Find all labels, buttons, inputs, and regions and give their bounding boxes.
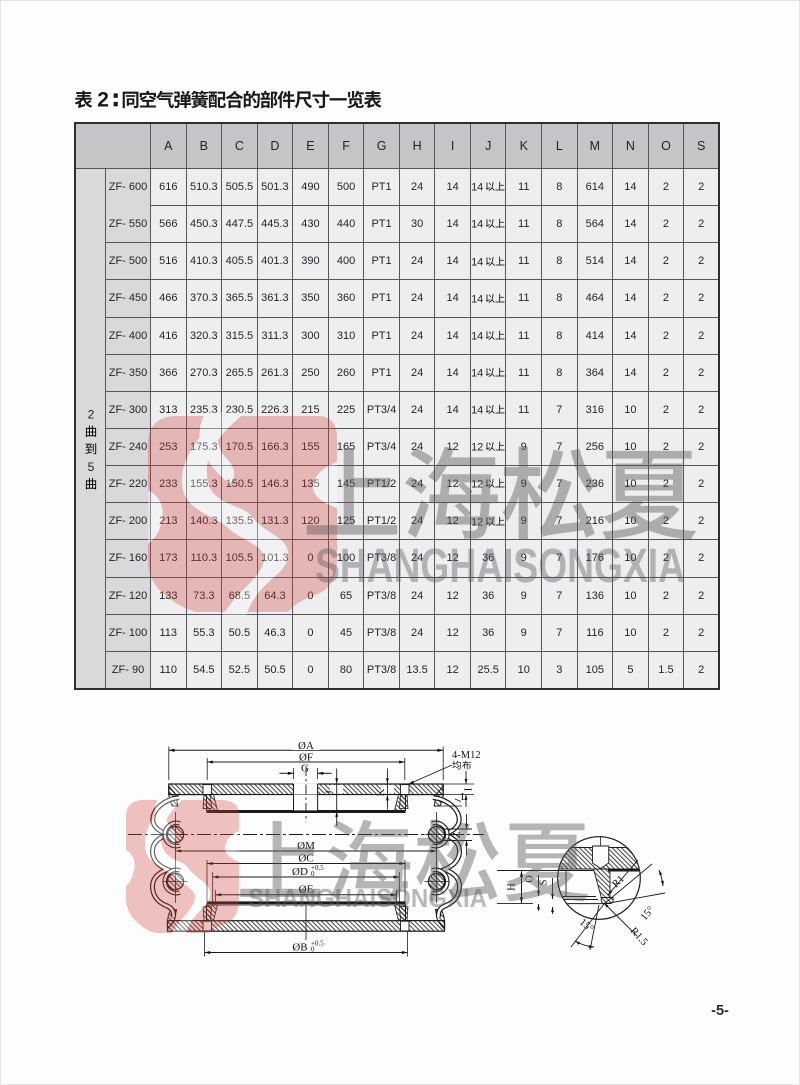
svg-text:15°: 15° — [639, 905, 657, 923]
svg-text:I: I — [464, 787, 475, 791]
svg-text:2: 2 — [97, 89, 109, 112]
svg-text:SHANGHAISONGXIA: SHANGHAISONGXIA — [315, 540, 685, 593]
svg-text:+0.5: +0.5 — [311, 864, 324, 872]
svg-text:+0.5: +0.5 — [311, 939, 324, 947]
svg-text:SHANGHAISONGXIA: SHANGHAISONGXIA — [248, 885, 487, 913]
svg-text:15°: 15° — [577, 917, 595, 935]
svg-text:ØA: ØA — [298, 740, 314, 752]
svg-text:ØD: ØD — [292, 866, 308, 878]
svg-text:K: K — [376, 788, 387, 796]
svg-text:ØB: ØB — [292, 941, 307, 953]
svg-text:L: L — [461, 792, 467, 803]
svg-text:4-M12: 4-M12 — [452, 750, 481, 761]
svg-text:G: G — [301, 763, 309, 775]
svg-text:J: J — [325, 790, 336, 794]
svg-text:R1.5: R1.5 — [628, 926, 650, 948]
